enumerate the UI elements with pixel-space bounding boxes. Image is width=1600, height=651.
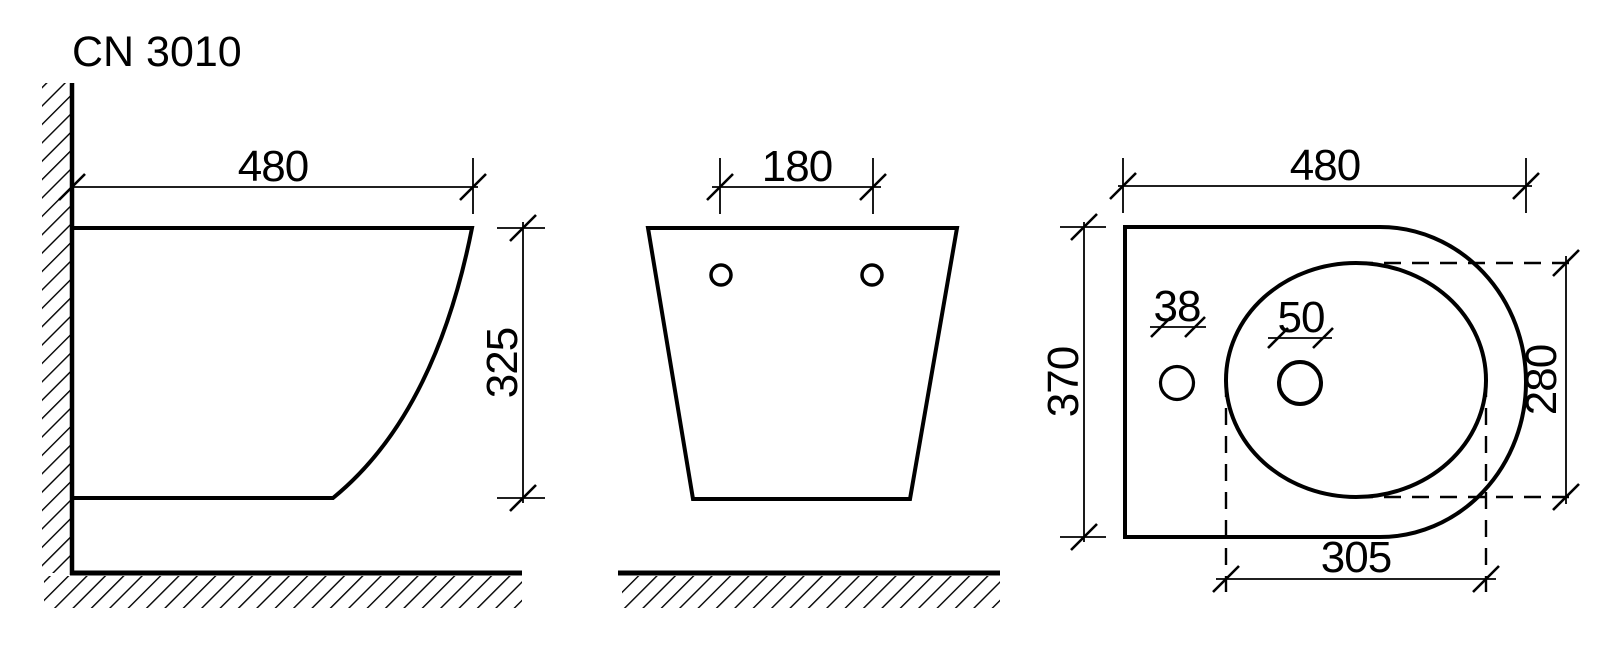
dim-faucet-hole: 50 bbox=[1268, 293, 1333, 348]
top-body-outline bbox=[1125, 227, 1526, 537]
dim-side-width-label: 480 bbox=[238, 142, 308, 191]
wall-hatch bbox=[42, 83, 72, 573]
dim-hole-spacing-label: 180 bbox=[762, 142, 832, 191]
front-body-outline bbox=[648, 228, 957, 499]
dim-faucet-hole-label: 50 bbox=[1278, 293, 1325, 342]
dim-side-height-label: 325 bbox=[478, 328, 527, 398]
drawing-canvas: CN 3010 480 325 bbox=[0, 0, 1600, 651]
floor-hatch bbox=[622, 576, 1000, 608]
dim-top-depth: 370 bbox=[1039, 214, 1106, 550]
dim-small-hole-label: 38 bbox=[1154, 282, 1201, 331]
dim-top-length-label: 480 bbox=[1290, 141, 1360, 190]
dim-bowl-length-label: 305 bbox=[1321, 533, 1391, 582]
bowl-outline bbox=[1226, 263, 1486, 497]
dim-bowl-width: 280 bbox=[1356, 250, 1579, 510]
side-body-outline bbox=[73, 228, 472, 498]
dim-bowl-length: 305 bbox=[1213, 380, 1499, 592]
dim-side-height: 325 bbox=[478, 215, 545, 511]
floor-hatch bbox=[44, 576, 522, 608]
dim-side-width: 480 bbox=[59, 142, 486, 214]
dim-hole-spacing: 180 bbox=[707, 142, 886, 214]
dim-top-length: 480 bbox=[1110, 141, 1539, 213]
dim-top-depth-label: 370 bbox=[1039, 347, 1088, 417]
technical-drawing: CN 3010 480 325 bbox=[0, 0, 1600, 651]
faucet-hole bbox=[1279, 362, 1321, 404]
mount-hole-left bbox=[711, 265, 731, 285]
top-view: 480 370 38 50 bbox=[1039, 141, 1579, 592]
small-hole bbox=[1161, 367, 1194, 400]
front-view: 180 bbox=[618, 142, 1000, 608]
mount-hole-right bbox=[862, 265, 882, 285]
side-view: 480 325 bbox=[42, 83, 545, 608]
dim-small-hole: 38 bbox=[1150, 282, 1206, 337]
model-title: CN 3010 bbox=[72, 28, 242, 76]
dim-bowl-width-label: 280 bbox=[1517, 345, 1566, 415]
